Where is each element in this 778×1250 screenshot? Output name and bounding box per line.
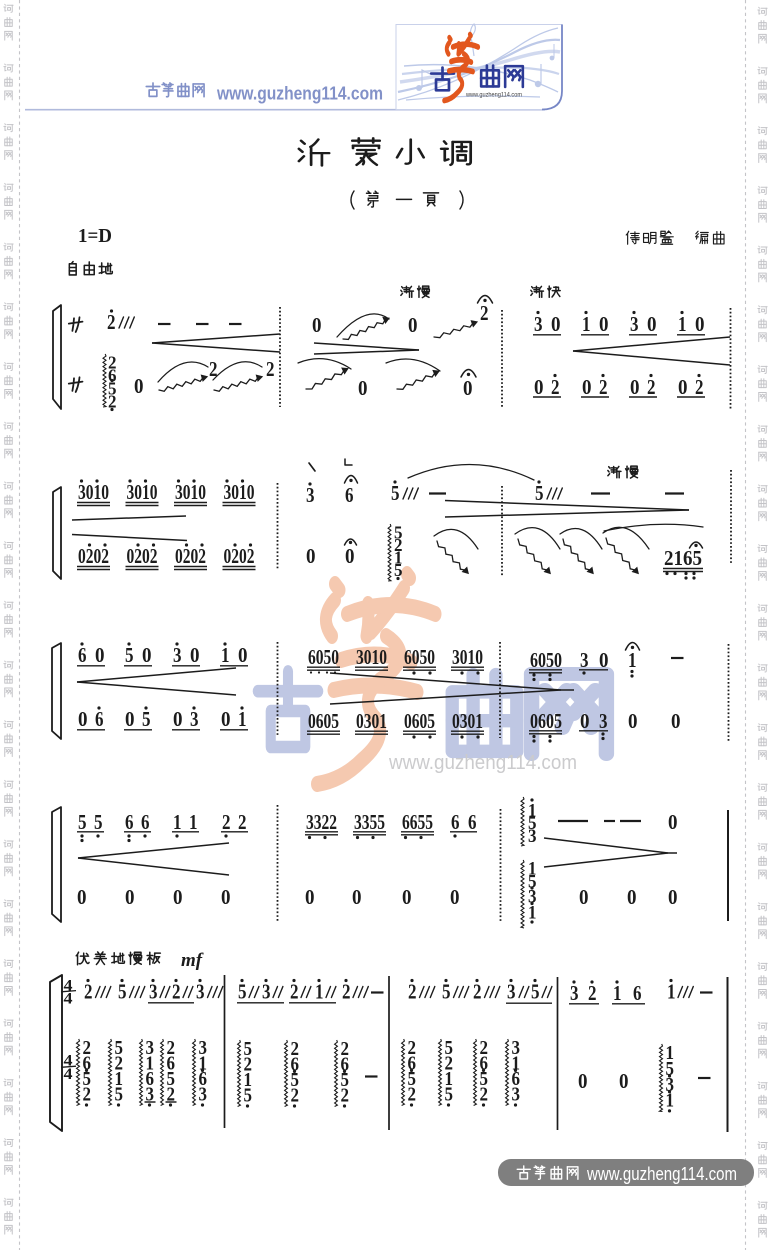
svg-text:6050: 6050 <box>404 645 435 669</box>
svg-text:0: 0 <box>599 648 609 672</box>
svg-text:1: 1 <box>315 979 324 1003</box>
svg-text:0: 0 <box>345 544 355 568</box>
svg-text:2165: 2165 <box>664 546 702 570</box>
svg-text:3: 3 <box>570 981 579 1005</box>
svg-text:0: 0 <box>95 643 105 667</box>
svg-text:2: 2 <box>342 979 351 1003</box>
svg-text:2: 2 <box>480 1084 489 1106</box>
svg-text:3: 3 <box>580 648 589 672</box>
svg-text:0: 0 <box>678 375 688 399</box>
svg-text:3010: 3010 <box>224 480 255 504</box>
svg-text:2: 2 <box>647 375 656 399</box>
svg-text:5: 5 <box>238 979 247 1003</box>
svg-text:0: 0 <box>408 313 418 337</box>
svg-text:2: 2 <box>408 1084 417 1106</box>
svg-text:0: 0 <box>238 643 248 667</box>
svg-text:2: 2 <box>695 375 704 399</box>
svg-text:0: 0 <box>78 707 88 731</box>
svg-text:3: 3 <box>599 709 608 733</box>
svg-text:0605: 0605 <box>308 709 339 733</box>
svg-text:2: 2 <box>473 979 482 1003</box>
svg-text:2: 2 <box>290 979 299 1003</box>
svg-text:2: 2 <box>172 979 181 1003</box>
svg-text:0: 0 <box>173 885 183 909</box>
svg-text:0: 0 <box>173 707 183 731</box>
svg-text:2: 2 <box>551 375 560 399</box>
svg-text:0202: 0202 <box>175 544 206 568</box>
svg-text:0: 0 <box>352 885 362 909</box>
svg-text:0: 0 <box>305 885 315 909</box>
svg-text:6: 6 <box>345 483 354 507</box>
svg-text:1: 1 <box>189 810 198 834</box>
svg-text:5: 5 <box>531 979 540 1003</box>
svg-text:0202: 0202 <box>224 544 255 568</box>
svg-text:0: 0 <box>402 885 412 909</box>
svg-text:0: 0 <box>463 376 473 400</box>
svg-text:0: 0 <box>312 313 322 337</box>
svg-text:5: 5 <box>78 810 87 834</box>
svg-text:2: 2 <box>107 310 116 334</box>
svg-text:2: 2 <box>599 375 608 399</box>
svg-text:2: 2 <box>83 1084 92 1106</box>
svg-text:0: 0 <box>134 374 144 398</box>
svg-text:1: 1 <box>678 312 687 336</box>
svg-text:6655: 6655 <box>402 810 433 834</box>
svg-text:mf: mf <box>181 950 204 971</box>
svg-text:6050: 6050 <box>530 648 562 672</box>
svg-text:2: 2 <box>408 979 417 1003</box>
svg-text:2: 2 <box>266 357 275 381</box>
svg-text:0202: 0202 <box>78 544 109 568</box>
svg-text:0301: 0301 <box>356 709 387 733</box>
svg-text:0: 0 <box>580 709 590 733</box>
svg-text:0: 0 <box>77 885 87 909</box>
svg-text:3: 3 <box>528 826 537 847</box>
svg-text:1: 1 <box>628 648 637 672</box>
svg-text:3: 3 <box>173 643 182 667</box>
svg-text:6: 6 <box>468 810 477 834</box>
svg-text:5: 5 <box>244 1085 253 1107</box>
svg-text:3: 3 <box>199 1084 208 1106</box>
svg-text:5: 5 <box>142 707 151 731</box>
svg-text:2: 2 <box>480 301 489 325</box>
svg-text:0: 0 <box>668 810 678 834</box>
svg-text:0: 0 <box>306 544 316 568</box>
svg-text:3: 3 <box>534 312 543 336</box>
svg-text:www.guzheng114.com: www.guzheng114.com <box>465 92 522 99</box>
svg-text:0: 0 <box>579 885 589 909</box>
svg-text:3355: 3355 <box>354 810 385 834</box>
svg-text:3010: 3010 <box>452 645 483 669</box>
svg-text:5: 5 <box>445 1084 454 1106</box>
svg-text:2: 2 <box>588 981 597 1005</box>
svg-text:www.guzheng114.com: www.guzheng114.com <box>216 84 383 104</box>
svg-text:6: 6 <box>141 810 150 834</box>
svg-text:5: 5 <box>535 481 544 505</box>
svg-text:4: 4 <box>64 991 73 1008</box>
svg-text:0: 0 <box>630 375 640 399</box>
svg-text:0: 0 <box>627 885 637 909</box>
svg-text:0: 0 <box>551 312 561 336</box>
svg-text:2: 2 <box>84 979 93 1003</box>
svg-text:0: 0 <box>599 312 609 336</box>
svg-text:www.guzheng114.com: www.guzheng114.com <box>388 752 577 774</box>
svg-text:5: 5 <box>118 979 127 1003</box>
svg-text:1: 1 <box>221 643 230 667</box>
svg-text:3010: 3010 <box>78 480 109 504</box>
svg-text:6: 6 <box>633 981 642 1005</box>
svg-text:5: 5 <box>115 1084 124 1106</box>
svg-text:3: 3 <box>306 483 315 507</box>
svg-text:5: 5 <box>394 560 403 580</box>
svg-text:2: 2 <box>222 810 231 834</box>
svg-text:3: 3 <box>512 1084 521 1106</box>
svg-text:0: 0 <box>142 643 152 667</box>
svg-text:1: 1 <box>613 981 622 1005</box>
svg-text:6: 6 <box>125 810 134 834</box>
svg-text:3010: 3010 <box>175 480 206 504</box>
svg-text:5: 5 <box>125 643 134 667</box>
svg-text:0: 0 <box>125 707 135 731</box>
svg-text:www.guzheng114.com: www.guzheng114.com <box>586 1164 737 1184</box>
svg-text:1=D: 1=D <box>78 225 112 247</box>
svg-text:0: 0 <box>671 709 681 733</box>
svg-text:3: 3 <box>630 312 639 336</box>
svg-text:0: 0 <box>628 709 638 733</box>
svg-text:2: 2 <box>238 810 247 834</box>
svg-text:0: 0 <box>582 375 592 399</box>
svg-text:6050: 6050 <box>308 645 339 669</box>
svg-text:1: 1 <box>238 707 247 731</box>
svg-text:0: 0 <box>358 376 368 400</box>
svg-text:1: 1 <box>173 810 182 834</box>
svg-text:6: 6 <box>95 707 104 731</box>
svg-text:3: 3 <box>196 979 205 1003</box>
svg-text:3010: 3010 <box>127 480 158 504</box>
svg-text:0: 0 <box>221 885 231 909</box>
svg-text:3: 3 <box>190 707 199 731</box>
svg-text:0: 0 <box>619 1069 629 1093</box>
svg-text:3: 3 <box>262 979 271 1003</box>
svg-text:0: 0 <box>450 885 460 909</box>
svg-text:5: 5 <box>442 979 451 1003</box>
svg-text:3010: 3010 <box>356 645 387 669</box>
svg-text:3: 3 <box>149 979 158 1003</box>
svg-text:0: 0 <box>647 312 657 336</box>
svg-text:3322: 3322 <box>306 810 337 834</box>
svg-text:5: 5 <box>94 810 103 834</box>
svg-text:0605: 0605 <box>404 709 435 733</box>
svg-text:2: 2 <box>341 1085 350 1107</box>
svg-text:1: 1 <box>582 312 591 336</box>
svg-text:0: 0 <box>221 707 231 731</box>
svg-text:0: 0 <box>668 885 678 909</box>
svg-text:0: 0 <box>190 643 200 667</box>
svg-text:0: 0 <box>578 1069 588 1093</box>
svg-text:2: 2 <box>291 1085 300 1107</box>
svg-text:0301: 0301 <box>452 709 483 733</box>
svg-text:0605: 0605 <box>530 709 562 733</box>
svg-text:3: 3 <box>507 979 516 1003</box>
svg-text:6: 6 <box>78 643 87 667</box>
svg-text:5: 5 <box>391 481 400 505</box>
svg-text:4: 4 <box>64 1066 73 1083</box>
svg-text:0: 0 <box>125 885 135 909</box>
svg-text:0202: 0202 <box>127 544 158 568</box>
svg-text:6: 6 <box>451 810 460 834</box>
svg-text:0: 0 <box>534 375 544 399</box>
svg-text:1: 1 <box>667 979 676 1003</box>
svg-text:0: 0 <box>695 312 705 336</box>
